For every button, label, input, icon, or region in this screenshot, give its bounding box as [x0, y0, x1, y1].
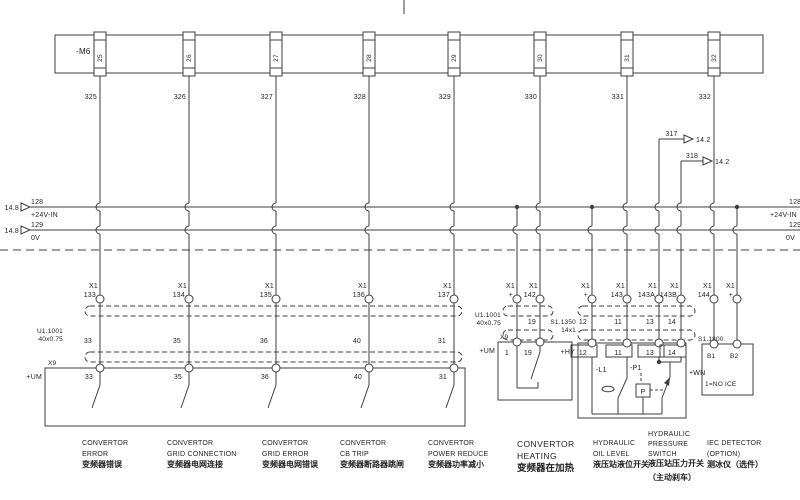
junction-dot [657, 360, 661, 364]
label: + [584, 292, 588, 299]
label: HYDRAULIC [593, 440, 635, 447]
label: 133 [84, 292, 96, 299]
label: 19 [524, 350, 532, 357]
label: X1 [726, 283, 735, 290]
label: POWER REDUCE [428, 451, 488, 458]
schematic-page: -M62532526326273272832829329303303133132… [0, 0, 800, 500]
cable-shield [503, 306, 553, 316]
label: -M6 [76, 47, 91, 56]
label: X1 [265, 283, 274, 290]
label: 330 [525, 94, 537, 101]
x9-pin [272, 364, 280, 372]
label: 变频器错误 [82, 459, 123, 469]
label: (OPTION) [707, 451, 740, 458]
label: GRID ERROR [262, 451, 309, 458]
x1-terminal [536, 295, 544, 303]
label: U1.1001 [37, 328, 63, 335]
label: 143A [638, 292, 655, 299]
hydraulic-pin [588, 339, 596, 347]
label: 液压站液位开关 [593, 459, 649, 469]
x9-connector-box [45, 368, 465, 426]
label: X1 [358, 283, 367, 290]
m6-terminal-block [708, 32, 720, 76]
label: 31 [624, 54, 631, 62]
label: 14.2 [696, 137, 710, 144]
label: 144 [698, 292, 710, 299]
label: 液压站压力开关 [648, 458, 704, 468]
label: 19 [528, 319, 536, 326]
contact-blade [618, 378, 627, 398]
label: + [509, 292, 513, 299]
label: 变频器功率减小 [428, 459, 484, 469]
label: 137 [438, 292, 450, 299]
label: HYDRAULIC [648, 431, 690, 438]
label: IEC DETECTOR [707, 440, 761, 447]
label: （主动刹车） [648, 472, 696, 482]
page-ref-arrow [21, 226, 30, 234]
label: X1 [703, 283, 712, 290]
x1-terminal [588, 295, 596, 303]
page-ref-arrow [21, 203, 30, 211]
hydraulic-pin [623, 339, 631, 347]
label: 31 [439, 374, 447, 381]
label: 143B [660, 292, 677, 299]
label: 136 [353, 292, 365, 299]
label: 40x0.75 [38, 336, 63, 343]
label: X1 [529, 283, 538, 290]
label: 变频器电网连接 [167, 459, 223, 469]
float-switch-symbol [602, 386, 614, 392]
m6-terminal-block [363, 32, 375, 76]
cable-shield [578, 306, 695, 316]
label: B2 [730, 353, 739, 360]
label: +24V-IN [31, 212, 58, 219]
label: +24V-IN [770, 212, 797, 219]
label: 40 [354, 374, 362, 381]
x1-terminal [733, 295, 741, 303]
m6-terminal-strip [55, 35, 763, 73]
label: CONVERTOR [262, 440, 308, 447]
label: 1 [505, 350, 509, 357]
x1-terminal [185, 295, 193, 303]
label: X1 [178, 283, 187, 290]
m6-terminal-block [183, 32, 195, 76]
contact-blade [92, 385, 100, 408]
label: 318 [686, 153, 698, 160]
label: 12 [579, 350, 587, 357]
label: 测冰仪（选件） [707, 459, 763, 469]
label: 325 [85, 94, 97, 101]
label: 35 [174, 374, 182, 381]
contact-blade [531, 352, 540, 379]
label: 14.8 [5, 205, 19, 212]
x1-terminal [710, 295, 718, 303]
label: X9 [500, 334, 509, 341]
label: X1 [581, 283, 590, 290]
label: 30 [537, 54, 544, 62]
label: X1 [616, 283, 625, 290]
label: GRID CONNECTION [167, 451, 237, 458]
contact-blade [268, 385, 276, 408]
label: 11 [614, 319, 622, 326]
label: 129 [31, 222, 43, 229]
label: 35 [173, 338, 181, 345]
label: 14 [668, 319, 676, 326]
label: S1.1350 [550, 319, 576, 326]
label: X9 [48, 360, 57, 367]
m6-terminal-block [270, 32, 282, 76]
label: SWITCH [648, 451, 677, 458]
label: 32 [711, 54, 718, 62]
label: CONVERTOR [340, 440, 386, 447]
label: 143 [611, 292, 623, 299]
label: X1 [443, 283, 452, 290]
hydraulic-pin [655, 339, 663, 347]
x1-terminal [623, 295, 631, 303]
label: -L1 [596, 367, 607, 374]
iec-pin [733, 340, 741, 348]
cable-shield [85, 352, 462, 362]
m6-terminal-block [94, 32, 106, 76]
label: 36 [261, 374, 269, 381]
label: 326 [174, 94, 186, 101]
x1-terminal [677, 295, 685, 303]
label: 11 [614, 350, 622, 357]
x9-pin [185, 364, 193, 372]
label: 328 [354, 94, 366, 101]
label: 332 [699, 94, 711, 101]
arrow-head [664, 377, 670, 386]
label: 0V [31, 235, 40, 242]
label: 31 [438, 338, 446, 345]
page-ref-arrow [684, 135, 693, 143]
label: X1 [89, 283, 98, 290]
label: HEATING [517, 451, 557, 461]
label: ERROR [82, 451, 108, 458]
label: 135 [260, 292, 272, 299]
label: 40 [353, 338, 361, 345]
label: X1 [506, 283, 515, 290]
label: 128 [789, 199, 800, 206]
label: 14 [668, 350, 676, 357]
label: X1 [648, 283, 657, 290]
label: CONVERTOR [167, 440, 213, 447]
label: 33 [85, 374, 93, 381]
m6-terminal-block [534, 32, 546, 76]
label: U1.1001 [475, 312, 501, 319]
label: 28 [366, 54, 373, 62]
label: 27 [273, 54, 280, 62]
label: +UM [479, 348, 495, 355]
label: 134 [173, 292, 185, 299]
label: 25 [97, 54, 104, 62]
wiring-diagram: -M62532526326273272832829329303303133132… [0, 0, 800, 500]
label: CONVERTOR [82, 440, 128, 447]
label: +HY [561, 349, 576, 356]
label: 变频器在加热 [517, 462, 575, 474]
label: 0V [786, 235, 795, 242]
label: 12 [579, 319, 587, 326]
hydraulic-pin [677, 339, 685, 347]
label: 129 [789, 222, 800, 229]
x9-pin [365, 364, 373, 372]
label: X1 [670, 283, 679, 290]
label: PRESSURE [648, 441, 688, 448]
label: P [641, 389, 646, 396]
label: 29 [451, 54, 458, 62]
label: CONVERTOR [428, 440, 474, 447]
label: +UM [26, 374, 42, 381]
label: CB TRIP [340, 451, 369, 458]
m6-terminal-block [621, 32, 633, 76]
label: 142 [524, 292, 536, 299]
heating-pin [513, 338, 521, 346]
label: 26 [186, 54, 193, 62]
label: 变频器电网错误 [262, 459, 319, 469]
x1-terminal [365, 295, 373, 303]
contact-blade [361, 385, 369, 408]
label: B1 [707, 353, 716, 360]
label: 317 [665, 131, 677, 138]
cable-shield [578, 330, 695, 340]
label: 14x1 [561, 327, 576, 334]
cable-shield [85, 306, 462, 316]
label: 40x0.75 [476, 320, 501, 327]
label: 128 [31, 199, 43, 206]
label: 331 [612, 94, 624, 101]
label: CONVERTOR [517, 439, 575, 449]
x9-pin [450, 364, 458, 372]
x1-terminal [96, 295, 104, 303]
label: -P1 [630, 365, 642, 372]
iec-pin [710, 340, 718, 348]
label: 329 [439, 94, 451, 101]
label: 1=NO ICE [705, 381, 737, 388]
contact-blade [181, 385, 189, 408]
contact-blade [446, 385, 454, 408]
label: 13 [646, 319, 654, 326]
x1-terminal [272, 295, 280, 303]
label: OIL LEVEL [593, 451, 630, 458]
cable-shield [503, 330, 553, 340]
label: + [729, 292, 733, 299]
m6-terminal-block [448, 32, 460, 76]
label: 327 [261, 94, 273, 101]
heating-pin [536, 338, 544, 346]
label: 13 [646, 350, 654, 357]
x9-pin [96, 364, 104, 372]
label: 14.8 [5, 228, 19, 235]
label: 36 [260, 338, 268, 345]
label: 14.2 [715, 159, 729, 166]
page-ref-arrow [703, 157, 712, 165]
x1-terminal [513, 295, 521, 303]
label: 变频器断路器跳闸 [340, 459, 404, 469]
x1-terminal [450, 295, 458, 303]
label: +WN [689, 370, 705, 377]
label: 33 [84, 338, 92, 345]
